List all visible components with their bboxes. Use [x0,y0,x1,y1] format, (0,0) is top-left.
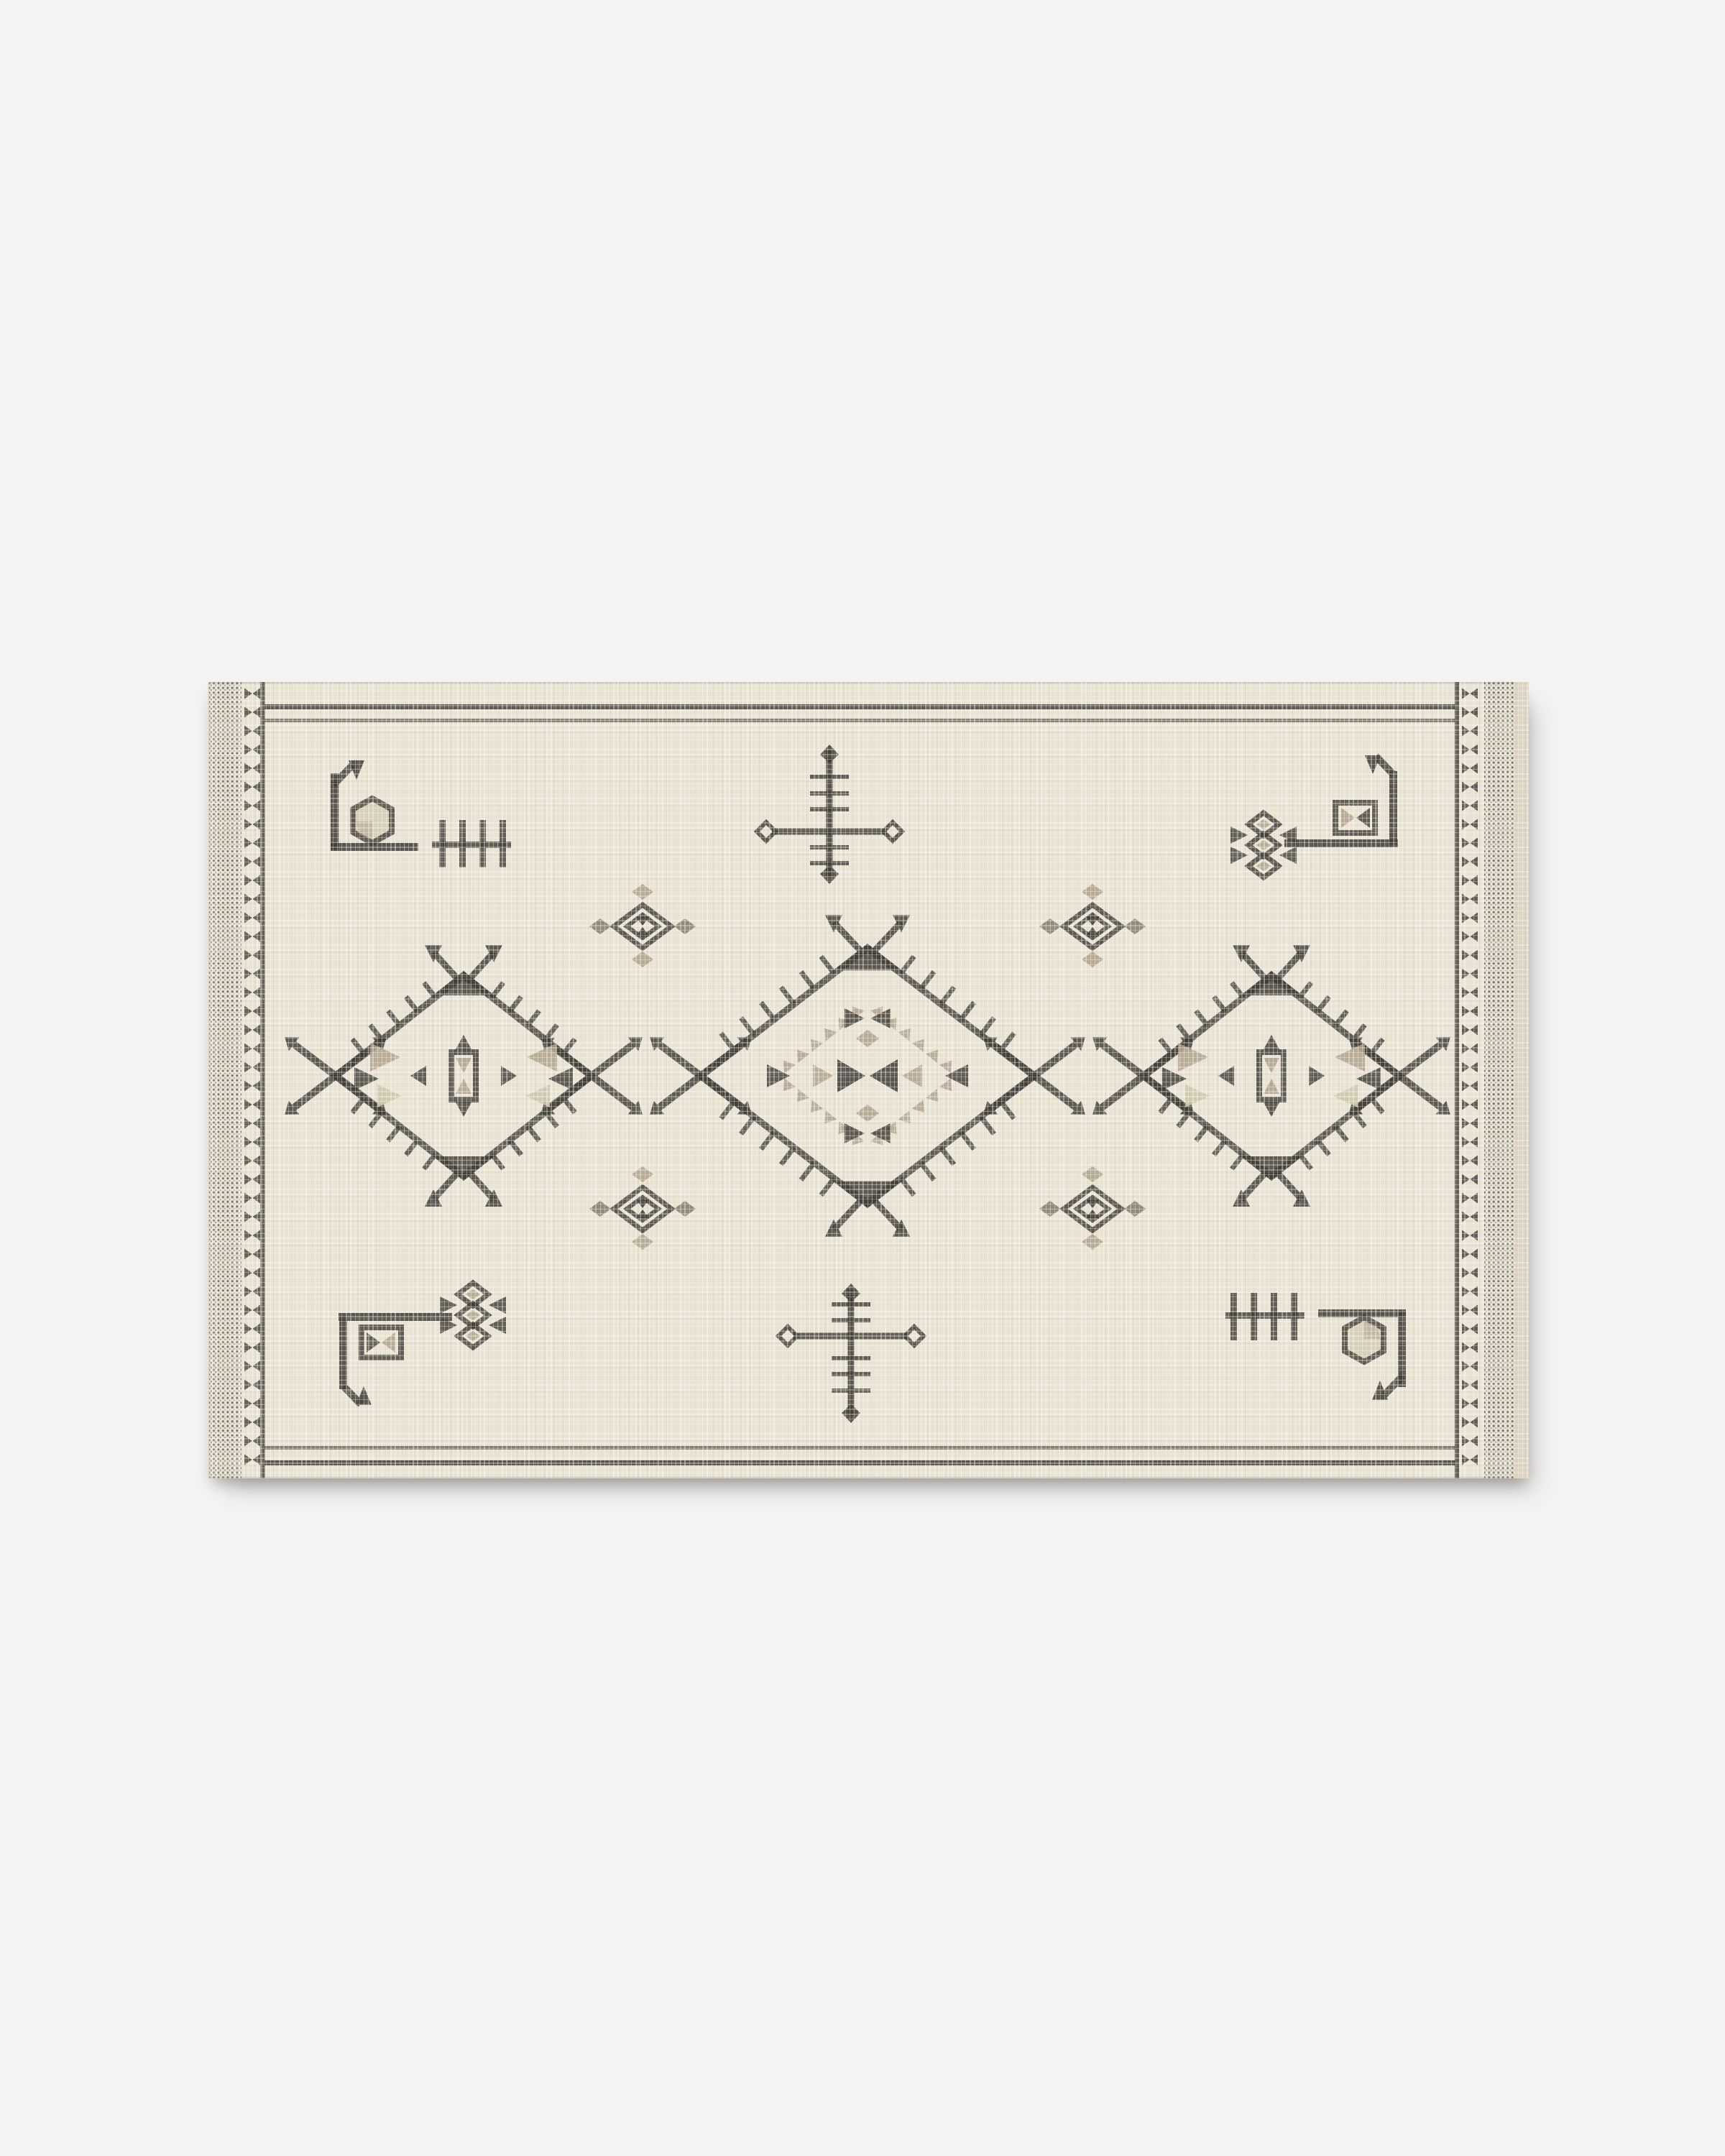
corner-motif-top-left [331,760,511,867]
corner-motif-bottom-right [1225,1293,1406,1400]
page-background: { "page": { "width": 2400, "height": 300… [0,0,1725,2156]
corner-motif-bottom-left [339,1283,506,1405]
diamond-cluster-motif [1039,1166,1146,1250]
totem-pole-motif [757,745,902,884]
rug-product-image [208,682,1529,1478]
medallion-center [650,915,1085,1237]
diamond-cluster-motif [589,1166,696,1250]
rug-pattern [208,682,1529,1478]
medallion-side [285,945,642,1207]
corner-motif-top-right [1230,755,1398,877]
totem-pole-motif [778,1284,924,1423]
medallion-side [1092,945,1450,1207]
diamond-cluster-motif [1039,884,1146,967]
diamond-cluster-motif [589,884,696,967]
